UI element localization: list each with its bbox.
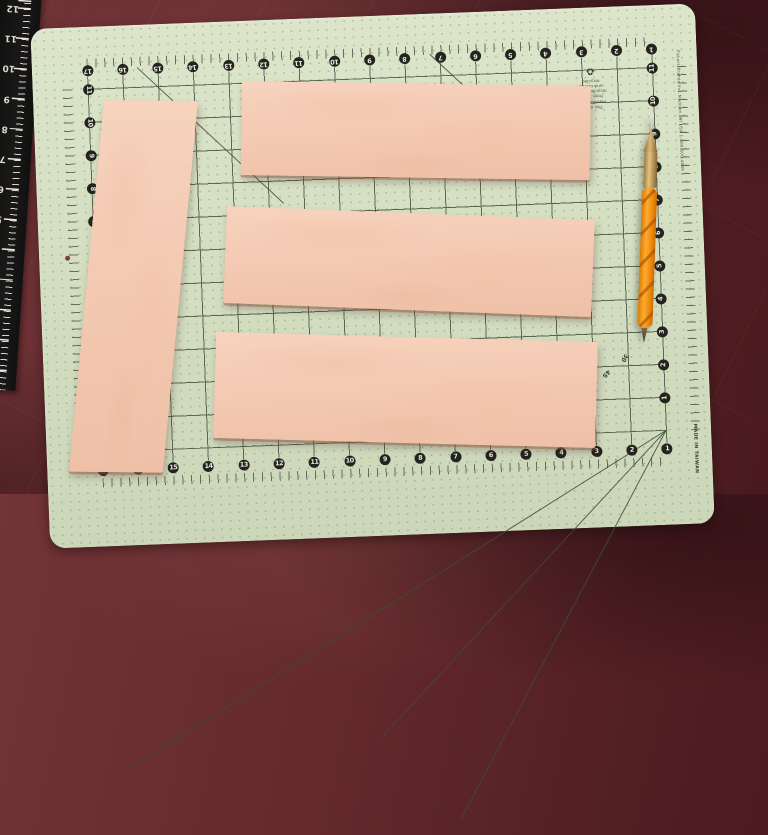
ruler-number: 5 <box>0 214 2 224</box>
ruler-number: 6 <box>0 183 4 193</box>
mat-number-bottom: 10 <box>344 455 355 466</box>
ruler-number: 11 <box>4 33 17 44</box>
mat-number-right: 2 <box>658 359 669 370</box>
mat-number-top: 1 <box>646 43 657 54</box>
mat-number-top: 9 <box>364 54 375 65</box>
awl-ferrule-cone <box>644 128 659 152</box>
awl-tip <box>641 328 648 343</box>
mat-number-right: 1 <box>659 392 670 403</box>
mat-number-top: 6 <box>470 50 481 61</box>
mat-number-bottom: 1 <box>661 443 672 454</box>
ruler-number: 9 <box>3 93 10 103</box>
mat-number-right: 10 <box>648 95 659 106</box>
mat-number-left: 10 <box>84 117 95 128</box>
ruler-number: 8 <box>1 123 8 133</box>
mat-number-top: 4 <box>540 47 551 58</box>
mat-number-bottom: 6 <box>485 450 496 461</box>
leather-strip-bottom <box>213 332 598 448</box>
mat-number-top: 16 <box>117 64 128 75</box>
ruler-major-ticks <box>0 0 32 390</box>
mat-number-bottom: 9 <box>379 454 390 465</box>
awl-fork-prong <box>652 116 654 130</box>
diagonal-60deg <box>461 430 667 820</box>
mat-number-top: 2 <box>611 45 622 56</box>
ruler-number: 12 <box>6 2 19 13</box>
mat-number-top: 5 <box>505 49 516 60</box>
mat-number-top: 7 <box>434 52 445 63</box>
mat-number-bottom: 11 <box>309 457 320 468</box>
mat-number-bottom: 14 <box>203 461 214 472</box>
mat-numbers: 1716151413121110987654321171615141312111… <box>30 3 695 29</box>
mat-number-bottom: 8 <box>415 453 426 464</box>
mat-number-top: 12 <box>258 58 269 69</box>
mat-number-bottom: 5 <box>520 449 531 460</box>
mat-number-bottom: 7 <box>450 451 461 462</box>
mat-number-right: 3 <box>657 326 668 337</box>
mat-number-top: 17 <box>82 65 93 76</box>
mat-number-left: 11 <box>82 84 93 95</box>
mat-number-bottom: 13 <box>238 459 249 470</box>
mat-number-bottom: 12 <box>273 458 284 469</box>
mat-number-top: 11 <box>293 57 304 68</box>
mat-number-bottom: 15 <box>168 462 179 473</box>
awl-barrel <box>643 152 657 188</box>
ruler-number: 7 <box>0 153 6 163</box>
mat-number-left: 9 <box>85 150 96 161</box>
leather-strip-top <box>241 81 591 180</box>
awl-fork-prong <box>649 116 651 130</box>
mat-number-top: 15 <box>152 62 163 73</box>
mat-number-top: 14 <box>188 61 199 72</box>
mat-number-top: 10 <box>329 56 340 67</box>
photo-scene: { "scene": { "leather_strips_count": 4, … <box>0 0 768 494</box>
diagonal-45deg <box>381 430 667 739</box>
mat-number-bottom: 2 <box>626 444 637 455</box>
mat-diagonals <box>30 3 695 29</box>
mat-number-top: 8 <box>399 53 410 64</box>
mat-number-top: 3 <box>576 46 587 57</box>
recycle-icon: ♻ <box>570 65 610 78</box>
mat-number-right: 11 <box>647 62 658 73</box>
mat-number-top: 13 <box>223 60 234 71</box>
awl-grip <box>637 188 657 328</box>
leather-strip-middle <box>223 206 594 317</box>
made-in-label: MADE IN TAIWAN <box>692 424 699 474</box>
mat-number-bottom: 4 <box>556 447 567 458</box>
ruler-number: 10 <box>2 63 15 74</box>
